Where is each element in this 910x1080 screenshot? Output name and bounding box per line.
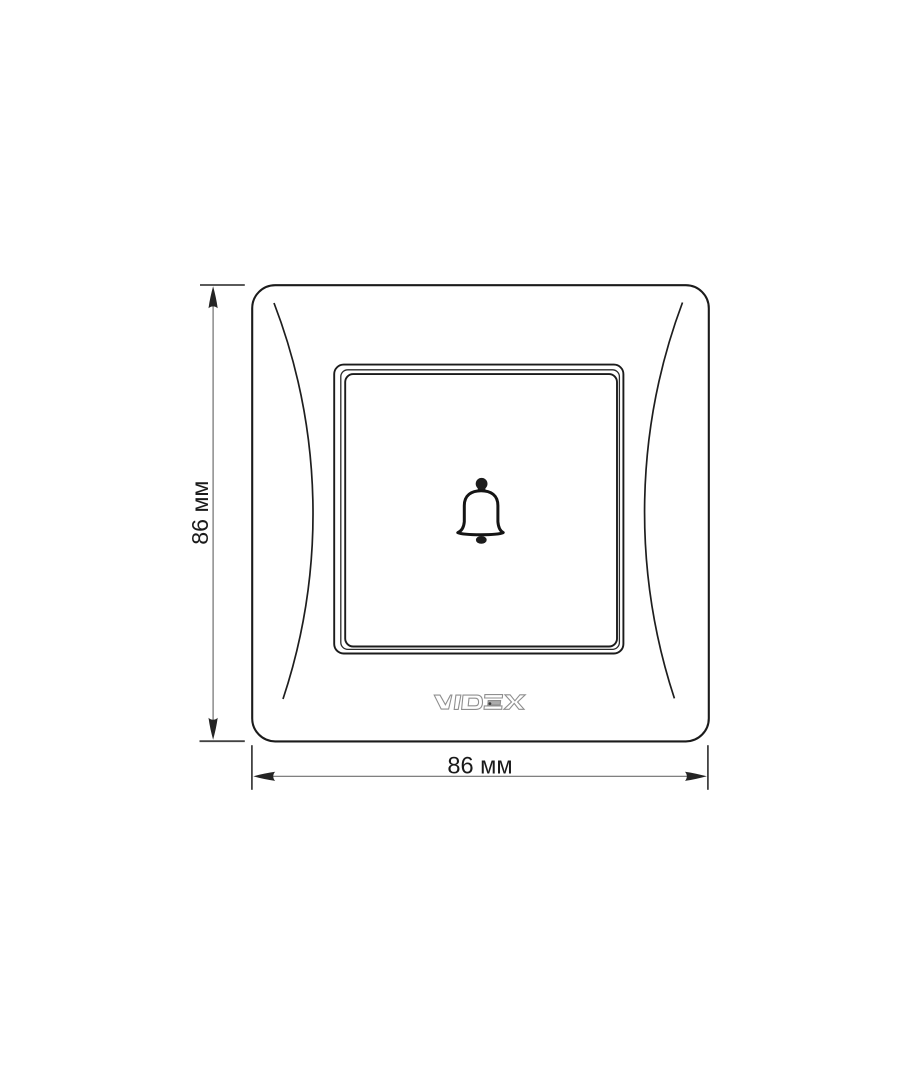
svg-text:86 мм: 86 мм [187, 481, 213, 545]
svg-text:86 мм: 86 мм [447, 754, 512, 780]
